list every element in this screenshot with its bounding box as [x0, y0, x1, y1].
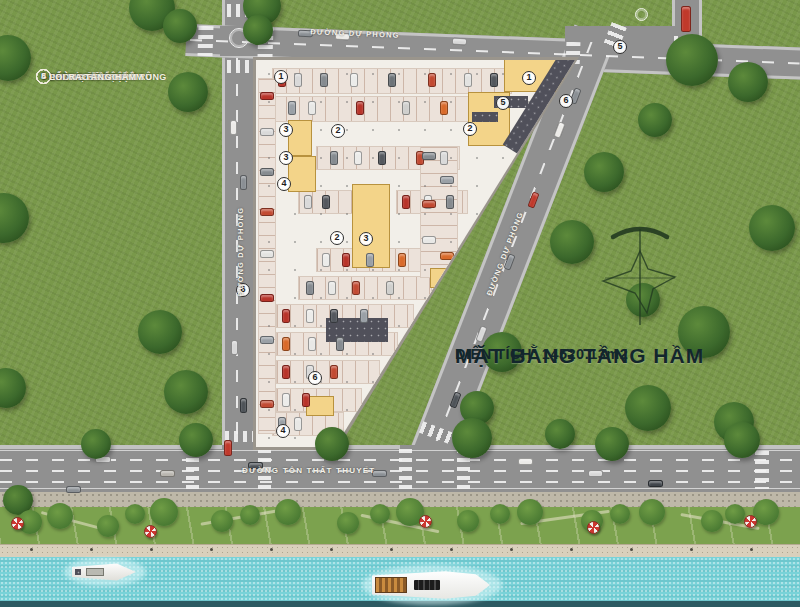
small-boat-hull	[72, 562, 136, 582]
compass-north-icon	[585, 215, 695, 330]
small-boat	[72, 562, 136, 582]
site-plan-basement: 132342315266465 ĐƯỜNG DỰ PHÒNG ĐƯỜNG DỰ …	[0, 0, 800, 607]
small-boat-cabin	[86, 568, 104, 576]
yacht-windows	[414, 580, 440, 590]
road-label-bottom: ĐƯỜNG TÔN THẤT THUYẾT	[242, 466, 372, 475]
yacht	[372, 570, 490, 600]
legend-item-label: - LỐI RA TẦNG HẦM	[43, 72, 136, 82]
small-boat-motor	[75, 569, 81, 575]
road-label-left: ĐƯỜNG DỰ PHÒNG	[236, 205, 245, 299]
yacht-stern-deck	[375, 577, 407, 593]
plan-area-text: DIỆN TÍCH: 14520.13m2	[455, 346, 628, 362]
